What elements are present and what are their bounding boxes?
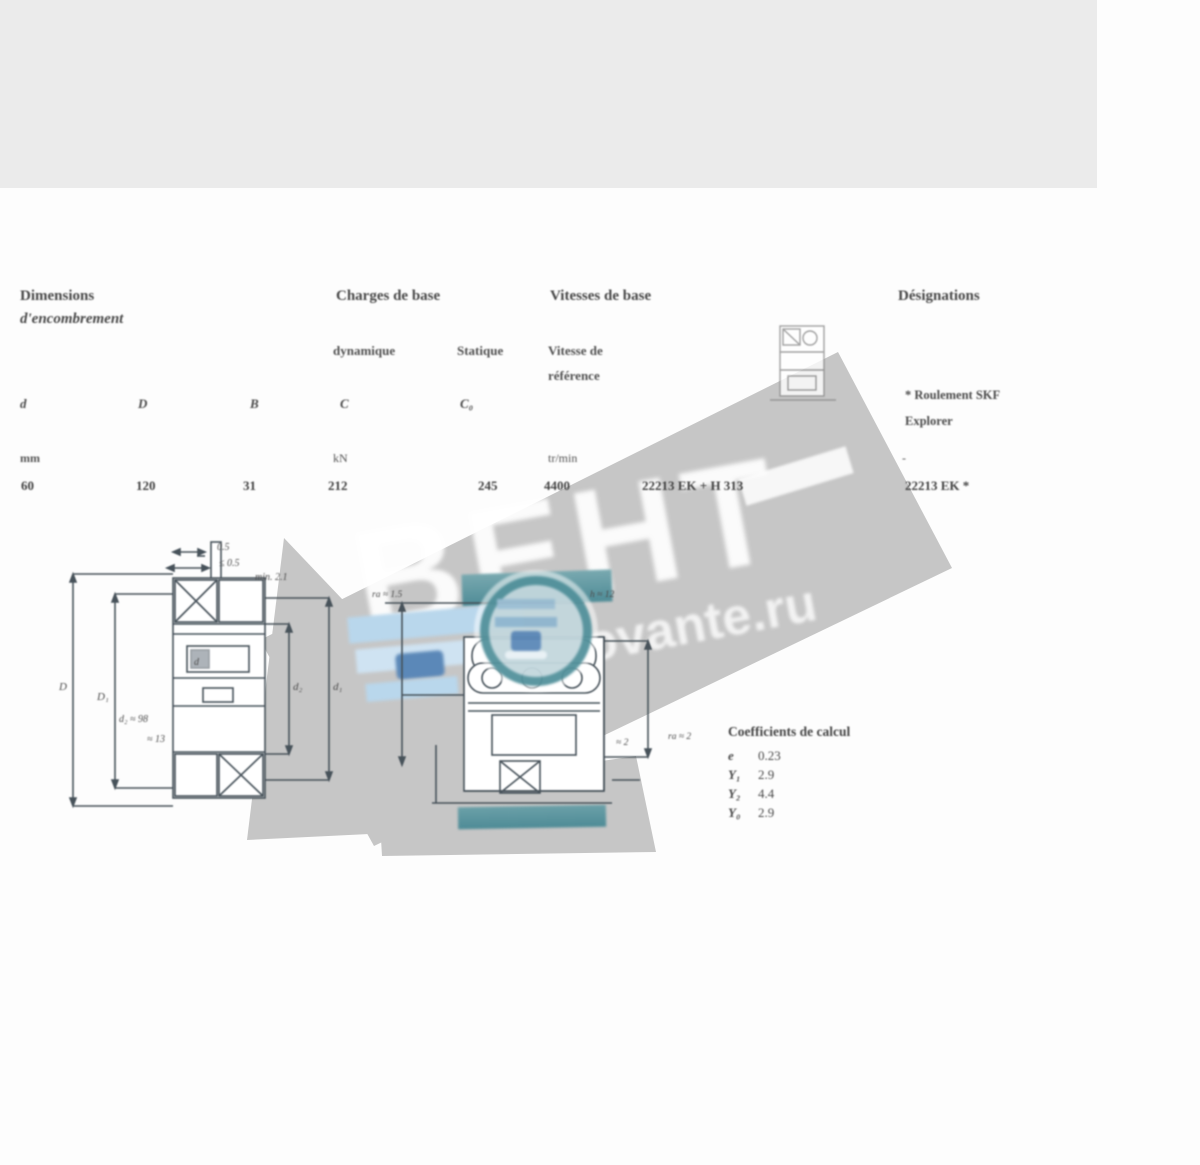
bearing-pictogram-icon [750, 318, 855, 413]
value-C: 212 [328, 478, 348, 494]
factor-symbol: e [728, 746, 758, 765]
dim-label: d₂ ≈ 98 [119, 714, 148, 725]
factor-value: 2.9 [758, 805, 774, 820]
dim-label: h ≈ 12 [590, 590, 614, 600]
subheader-ref-speed-2: référence [548, 368, 600, 384]
factor-value: 2.9 [758, 767, 774, 782]
factor-row: Y₀2.9 [728, 803, 850, 822]
unit-kn: kN [333, 451, 348, 466]
unit-dash: - [902, 451, 906, 466]
unit-rpm: tr/min [548, 451, 577, 466]
dim-label: ≈ 2 [616, 738, 629, 748]
value-B: 31 [243, 478, 256, 494]
dim-label: D [58, 681, 67, 693]
factor-value: 4.4 [758, 786, 774, 801]
dim-label: ≈ 13 [147, 734, 165, 745]
table-header-background [0, 0, 1097, 188]
symbol-C: C [340, 396, 349, 412]
col-header-dimensions-2: d'encombrement [20, 311, 123, 328]
calculation-factors: Coefficients de calcul e0.23 Y₁2.9 Y₂4.4… [728, 724, 850, 822]
footnote-explorer-2: Explorer [905, 414, 953, 429]
dim-label: D₁ [96, 691, 109, 703]
dim-label: 0.5 [217, 542, 230, 553]
footnote-explorer: * Roulement SKF [905, 388, 1000, 403]
subheader-static: Statique [457, 343, 503, 359]
value-D: 120 [136, 478, 156, 494]
factor-row: Y₂4.4 [728, 784, 850, 803]
dim-label: d₂ [293, 681, 303, 693]
col-header-speeds: Vitesses de base [550, 288, 651, 305]
dim-label: d₁ [333, 681, 343, 693]
factor-symbol: Y₂ [728, 784, 758, 803]
factors-title: Coefficients de calcul [728, 724, 850, 740]
symbol-D: D [138, 396, 147, 412]
value-ref-speed: 4400 [544, 478, 570, 494]
value-d: 60 [21, 478, 34, 494]
symbol-B: B [250, 396, 259, 412]
factor-symbol: Y₁ [728, 765, 758, 784]
factor-symbol: Y₀ [728, 803, 758, 822]
unit-mm: mm [20, 451, 40, 466]
bearing-section-drawing: 0.5 ≤ 0.5 min. 2.1 D D₁ d₂ d₁ d₂ ≈ 98 ≈ … [55, 538, 370, 843]
designation-with-sleeve: 22213 EK + H 313 [642, 478, 743, 494]
subheader-dynamic: dynamique [333, 343, 395, 359]
col-header-designations: Désignations [898, 288, 980, 305]
logo-bearing-circle-icon [480, 576, 592, 686]
factor-row: e0.23 [728, 746, 850, 765]
col-header-dimensions: Dimensions [20, 288, 94, 305]
subheader-ref-speed: Vitesse de [548, 343, 603, 359]
symbol-C0: C₀ [460, 396, 473, 412]
symbol-d: d [20, 396, 27, 412]
col-header-loads: Charges de base [336, 288, 440, 305]
factor-row: Y₁2.9 [728, 765, 850, 784]
dim-label: min. 2.1 [255, 572, 288, 583]
dim-label: ra ≈ 1.5 [372, 590, 403, 600]
value-C0: 245 [478, 478, 498, 494]
designation-bearing: 22213 EK * [905, 478, 969, 494]
dim-label: ≤ 0.5 [219, 558, 240, 569]
factor-value: 0.23 [758, 748, 781, 763]
dim-label: ra ≈ 2 [668, 732, 691, 742]
catalog-page: ВЕНТ movante.ru [0, 0, 1200, 1165]
